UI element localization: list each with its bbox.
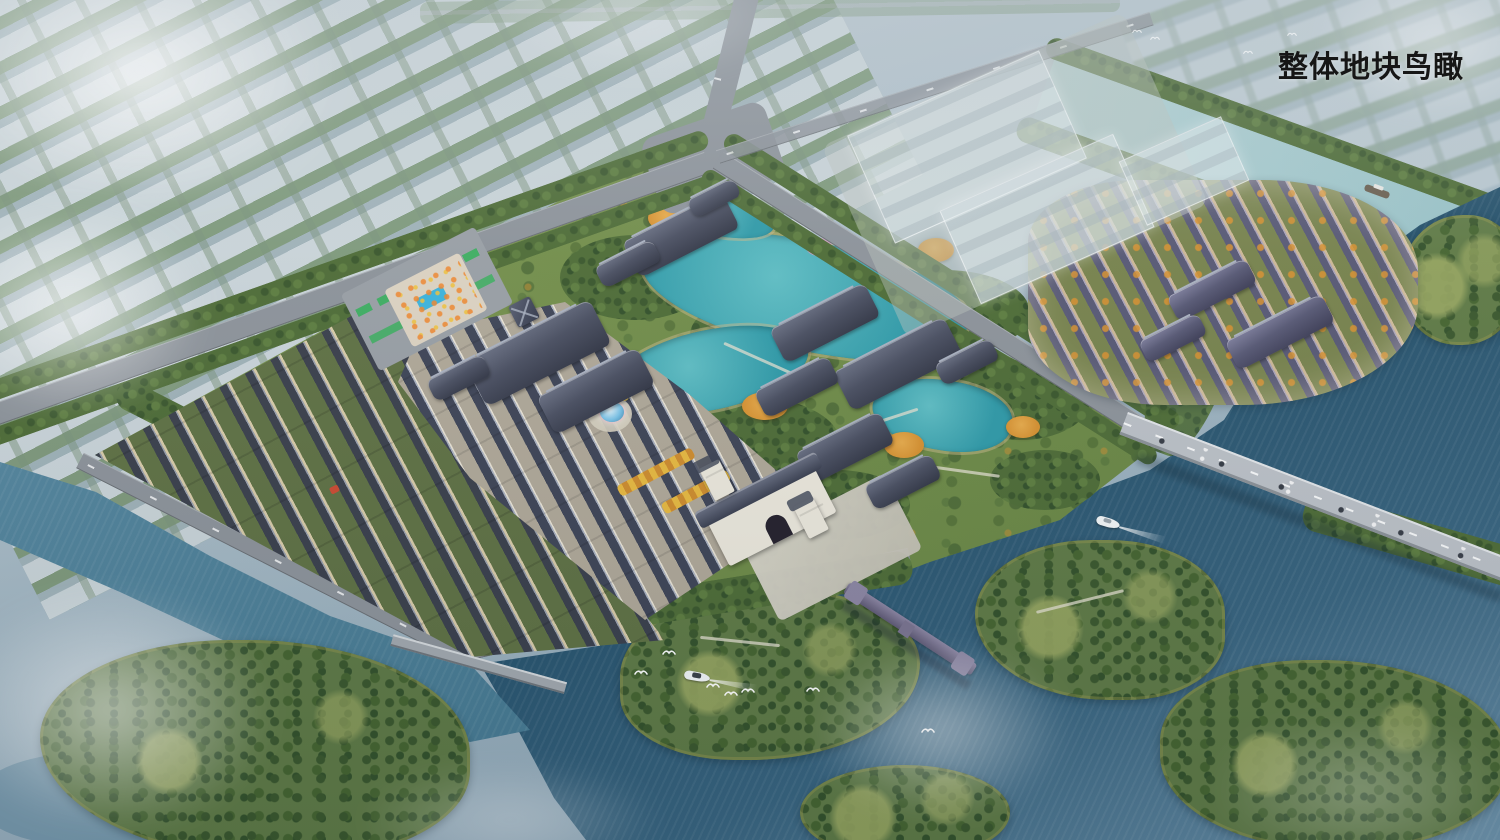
tree-cluster <box>990 450 1100 510</box>
bird-icon <box>741 686 755 693</box>
bird-icon <box>706 681 720 688</box>
bird-icon <box>634 668 648 675</box>
bird-icon <box>1243 49 1253 54</box>
aerial-masterplan-rendering: 整体地块鸟瞰 <box>0 0 1500 840</box>
autumn-trees <box>1006 416 1040 438</box>
page-title: 整体地块鸟瞰 <box>1278 42 1464 86</box>
fog-cloud <box>0 540 340 840</box>
bird-icon <box>1150 35 1160 40</box>
fog-cloud <box>760 610 1120 840</box>
bird-icon <box>662 648 676 655</box>
bird-icon <box>1132 28 1142 33</box>
bird-icon <box>724 689 738 696</box>
